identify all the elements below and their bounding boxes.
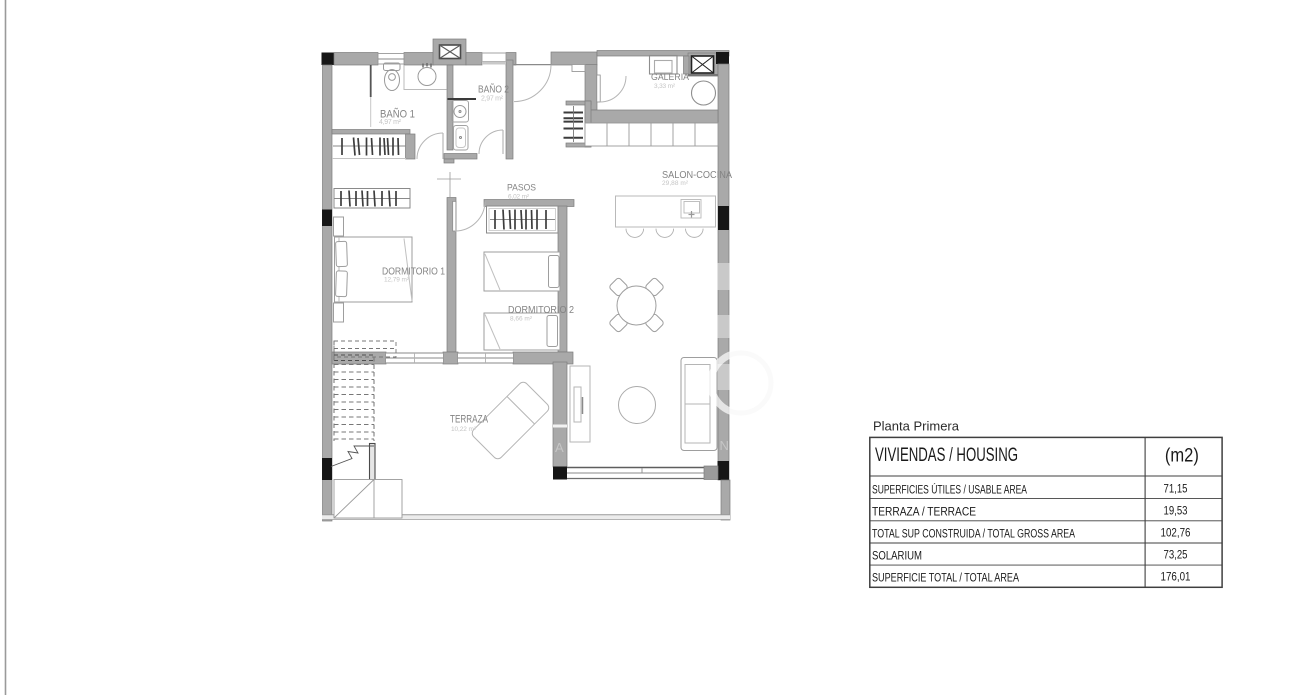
svg-text:Planta Primera: Planta Primera xyxy=(873,419,960,434)
svg-text:GALERIA: GALERIA xyxy=(651,72,690,83)
svg-text:2,97 m²: 2,97 m² xyxy=(481,96,504,103)
svg-text:SUPERFICIE TOTAL / TOTAL AREA: SUPERFICIE TOTAL / TOTAL AREA xyxy=(872,573,1019,585)
svg-text:29,88 m²: 29,88 m² xyxy=(662,180,689,187)
svg-text:102,76: 102,76 xyxy=(1161,528,1191,540)
svg-text:12,79 m²: 12,79 m² xyxy=(384,277,410,284)
svg-text:PASOS: PASOS xyxy=(507,183,536,194)
svg-text:SUPERFICIES ÚTILES / USABLE AR: SUPERFICIES ÚTILES / USABLE AREA xyxy=(872,484,1027,497)
svg-text:TERRAZA / TERRACE: TERRAZA / TERRACE xyxy=(872,507,976,519)
svg-text:TOTAL SUP CONSTRUIDA / TOTAL G: TOTAL SUP CONSTRUIDA / TOTAL GROSS AREA xyxy=(872,529,1075,541)
svg-text:176,01: 176,01 xyxy=(1161,572,1191,584)
svg-text:(m2): (m2) xyxy=(1165,446,1199,467)
svg-text:3,33 m²: 3,33 m² xyxy=(654,83,676,90)
svg-text:10,22 m²: 10,22 m² xyxy=(451,426,477,433)
svg-text:SOLARIUM: SOLARIUM xyxy=(872,551,922,563)
svg-text:6,02 m²: 6,02 m² xyxy=(508,194,530,201)
svg-text:TERRAZA: TERRAZA xyxy=(450,414,488,426)
svg-text:19,53: 19,53 xyxy=(1164,506,1188,518)
svg-text:N: N xyxy=(720,438,729,453)
svg-text:VIVIENDAS / HOUSING: VIVIENDAS / HOUSING xyxy=(875,445,1018,466)
svg-text:DORMITORIO 2: DORMITORIO 2 xyxy=(508,305,574,316)
svg-text:8,66 m²: 8,66 m² xyxy=(510,316,533,323)
svg-text:73,25: 73,25 xyxy=(1164,550,1188,562)
svg-text:4,97 m²: 4,97 m² xyxy=(379,119,402,126)
svg-text:BAÑO 2: BAÑO 2 xyxy=(478,83,509,96)
svg-text:A: A xyxy=(555,440,564,455)
svg-text:71,15: 71,15 xyxy=(1164,484,1188,496)
